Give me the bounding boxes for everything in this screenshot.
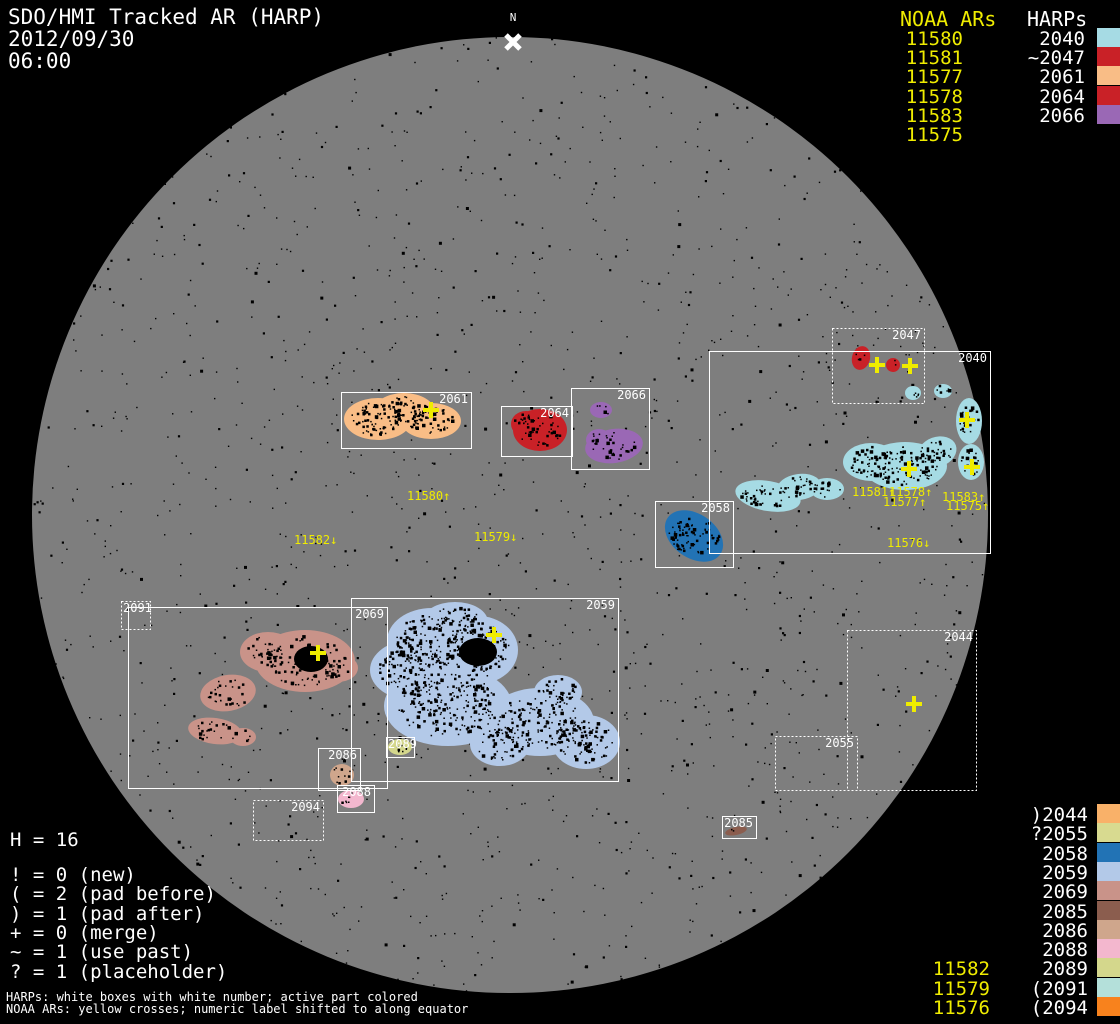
equator-noaa-label: 11576↓: [887, 536, 930, 550]
color-swatch: [1097, 823, 1120, 842]
harp-box-label: 2086: [328, 748, 357, 762]
harp-item: 2085: [968, 903, 1088, 922]
date-label: 2012/09/30: [8, 28, 134, 50]
active-region-blob: [905, 386, 921, 400]
harps-header: HARPs: [1027, 10, 1087, 29]
color-swatch: [1097, 843, 1120, 862]
harp-item: ?2055: [968, 825, 1088, 844]
harp-item: 2059: [968, 864, 1088, 883]
equator-noaa-label: 11580↑: [407, 489, 450, 503]
harp-item: 2066: [965, 107, 1085, 126]
harp-box-label: 2066: [617, 388, 646, 402]
active-region-blob: [586, 429, 612, 451]
active-region-blob: [886, 358, 900, 372]
noaa-ar-item: 11578: [845, 88, 963, 107]
harp-item: 2064: [965, 88, 1085, 107]
color-swatch: [1097, 939, 1120, 958]
active-region-blob: [459, 638, 497, 666]
north-label: N: [510, 11, 517, 24]
harp-item: 2040: [965, 30, 1085, 49]
harp-box-label: 2085: [724, 816, 753, 830]
harp-box-label: 2091: [123, 601, 152, 615]
harp-count-label: H = 16: [10, 831, 79, 850]
color-swatch: [1097, 978, 1120, 997]
harp-item: 2086: [968, 922, 1088, 941]
harp-item: 2061: [965, 68, 1085, 87]
harp-box-label: 2088: [342, 785, 371, 799]
harp-box-label: 2061: [439, 392, 468, 406]
harp-box-label: 2058: [701, 501, 730, 515]
legend-line: ~ = 1 (use past): [10, 943, 193, 962]
legend-line: ! = 0 (new): [10, 866, 136, 885]
color-swatch: [1097, 881, 1120, 900]
active-region-blob: [230, 728, 256, 746]
noaa-ars-header: NOAA ARs: [900, 10, 996, 29]
harp-item: )2044: [968, 806, 1088, 825]
noaa-ar-item: 11575: [845, 126, 963, 145]
color-swatch: [1097, 901, 1120, 920]
harp-tracking-plot: { "header": { "title": "SDO/HMI Tracked …: [0, 0, 1120, 1024]
color-swatch: [1097, 958, 1120, 977]
color-swatch: [1097, 47, 1120, 66]
footnote-noaa: NOAA ARs: yellow crosses; numeric label …: [6, 1002, 468, 1016]
active-region-blob: [330, 764, 354, 786]
time-label: 06:00: [8, 50, 71, 72]
color-swatch: [1097, 920, 1120, 939]
color-swatch: [1097, 28, 1120, 47]
noaa-ar-item: 11580: [845, 30, 963, 49]
color-swatch: [1097, 86, 1120, 105]
solar-disk-plot: 2061206420662047204020582059206920892086…: [0, 0, 1120, 1024]
harp-item: ~2047: [965, 49, 1085, 68]
legend-line: ? = 1 (placeholder): [10, 963, 227, 982]
legend-line: ( = 2 (pad before): [10, 885, 216, 904]
harp-box-label: 2047: [892, 328, 921, 342]
color-swatch: [1097, 862, 1120, 881]
noaa-ar-item: 11576: [910, 999, 990, 1018]
harp-box-label: 2089: [388, 737, 417, 751]
noaa-ar-item: 11582: [910, 960, 990, 979]
harp-item: 2088: [968, 941, 1088, 960]
color-swatch: [1097, 66, 1120, 85]
equator-noaa-label: 11582↓: [294, 533, 337, 547]
equator-noaa-label: 11575↑: [946, 499, 989, 513]
harp-box-label: 2044: [944, 630, 973, 644]
harp-box-label: 2059: [586, 598, 615, 612]
harp-box-label: 2069: [355, 607, 384, 621]
page-title: SDO/HMI Tracked AR (HARP): [8, 6, 324, 28]
color-swatch: [1097, 105, 1120, 124]
noaa-ar-item: 11579: [910, 980, 990, 999]
harp-box-label: 2040: [958, 351, 987, 365]
harp-item: 2069: [968, 883, 1088, 902]
harp-box-label: 2055: [825, 736, 854, 750]
equator-noaa-label: 11579↓: [474, 530, 517, 544]
harp-box-label: 2064: [540, 406, 569, 420]
noaa-ar-item: 11583: [845, 107, 963, 126]
sun-disk: [32, 37, 988, 993]
legend-line: ) = 1 (pad after): [10, 905, 204, 924]
noaa-ar-item: 11577: [845, 68, 963, 87]
active-region-blob: [294, 646, 328, 672]
color-swatch: [1097, 804, 1120, 823]
noaa-ar-item: 11581: [845, 49, 963, 68]
harp-box-label: 2094: [291, 800, 320, 814]
harp-item: 2058: [968, 845, 1088, 864]
equator-noaa-label: 11577↑: [883, 495, 926, 509]
color-swatch: [1097, 997, 1120, 1016]
legend-line: + = 0 (merge): [10, 924, 159, 943]
active-region-blob: [590, 402, 612, 418]
